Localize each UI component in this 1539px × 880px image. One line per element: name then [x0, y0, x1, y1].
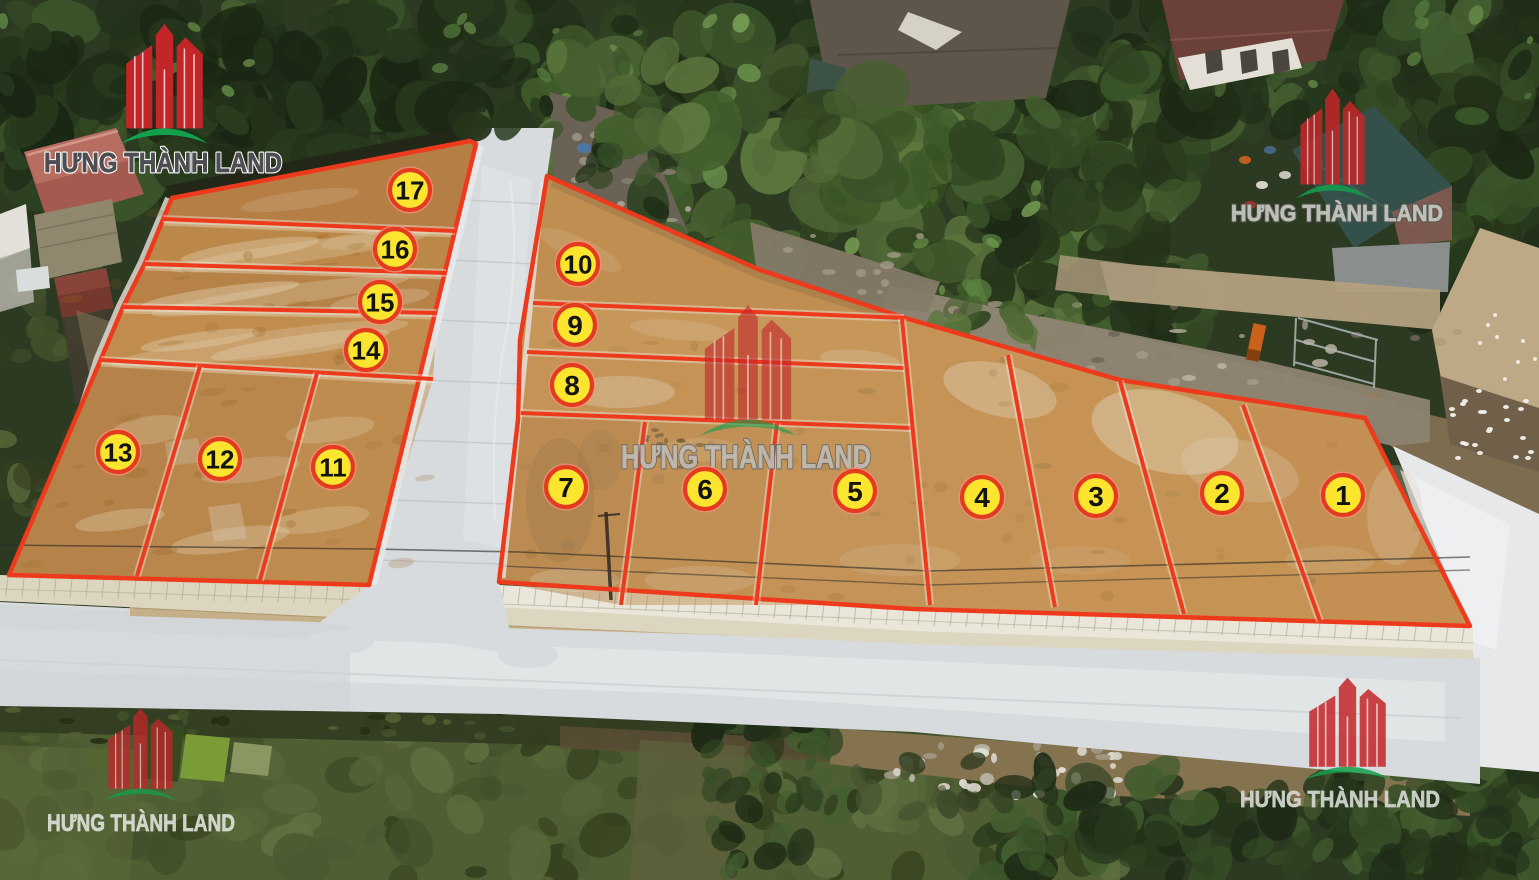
svg-text:4: 4	[974, 482, 990, 513]
svg-text:16: 16	[381, 234, 410, 264]
svg-text:6: 6	[697, 474, 713, 505]
svg-text:12: 12	[206, 444, 235, 474]
svg-text:15: 15	[366, 287, 395, 317]
svg-text:9: 9	[567, 310, 583, 341]
svg-text:8: 8	[564, 370, 580, 401]
svg-text:11: 11	[319, 452, 347, 482]
svg-text:2: 2	[1214, 478, 1230, 509]
svg-text:5: 5	[847, 476, 863, 507]
svg-text:HƯNG THÀNH LAND: HƯNG THÀNH LAND	[1240, 785, 1440, 812]
svg-text:10: 10	[564, 249, 593, 279]
svg-text:HƯNG THÀNH LAND: HƯNG THÀNH LAND	[621, 439, 871, 475]
svg-text:17: 17	[396, 175, 425, 205]
svg-text:1: 1	[1335, 480, 1351, 511]
svg-text:13: 13	[104, 437, 133, 467]
svg-text:14: 14	[352, 335, 381, 365]
svg-text:3: 3	[1088, 481, 1104, 512]
svg-text:HƯNG THÀNH LAND: HƯNG THÀNH LAND	[47, 809, 235, 837]
svg-text:HƯNG THÀNH LAND: HƯNG THÀNH LAND	[44, 147, 282, 178]
svg-text:7: 7	[558, 472, 574, 503]
svg-text:HƯNG THÀNH LAND: HƯNG THÀNH LAND	[1231, 199, 1443, 226]
